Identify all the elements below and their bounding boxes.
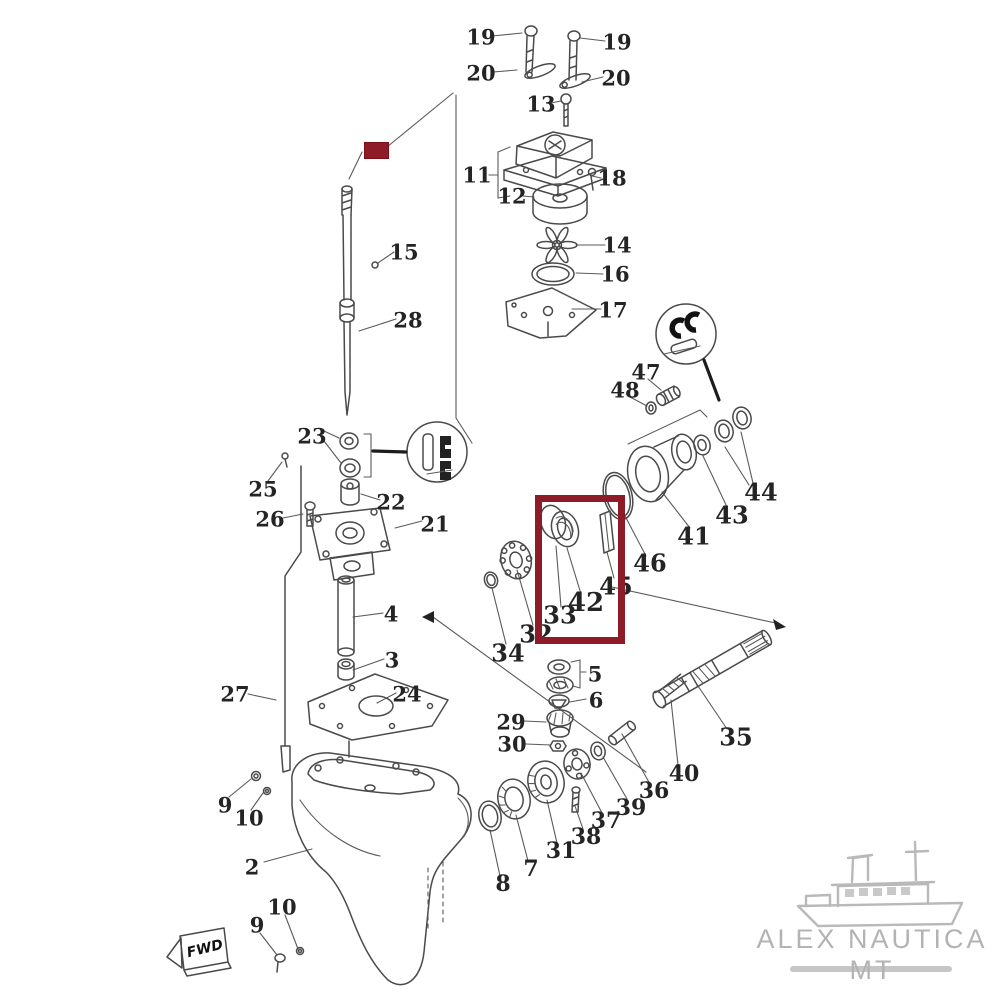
bolt-19-left — [525, 26, 537, 72]
gear-29 — [547, 710, 573, 737]
seal-8 — [476, 799, 504, 833]
pinion-gear-37 — [562, 747, 593, 781]
pump-cup-12 — [533, 184, 587, 224]
bolt-9-top — [252, 772, 261, 781]
seal-detail-balloon — [373, 422, 467, 482]
washer-20-right — [558, 71, 591, 91]
prop-shaft-35 — [651, 628, 774, 710]
bearing-carrier-41 — [623, 432, 700, 506]
highlight-box-part-42 — [535, 495, 625, 644]
lower-drive-shaft-4 — [338, 576, 354, 656]
parts-diagram-drawing — [0, 0, 1000, 1000]
gasket-16 — [532, 263, 574, 285]
lower-casing-2 — [292, 753, 471, 985]
washer-10-bottom — [297, 948, 304, 955]
plate-17 — [506, 288, 596, 338]
bushing-22 — [341, 479, 359, 505]
brand-watermark-text: ALEX NAUTICA MT — [742, 924, 1000, 986]
leader-lines — [229, 33, 753, 955]
drive-shaft-28 — [340, 186, 378, 415]
pin-25 — [282, 453, 288, 467]
bearing-housing-21 — [310, 508, 390, 580]
seals-23 — [340, 433, 371, 477]
bolt-9-bottom — [275, 954, 285, 972]
impeller-14 — [537, 226, 577, 264]
pump-housing-11 — [504, 132, 606, 196]
bushing-3 — [338, 659, 354, 680]
bolt-26 — [305, 502, 315, 526]
clip-detail-balloon — [656, 304, 719, 400]
oil-seals-44 — [712, 405, 753, 444]
washer-20-left — [523, 61, 556, 81]
bolt-19-right — [568, 31, 580, 80]
washer-10-top — [264, 788, 271, 795]
bearing-32 — [496, 538, 536, 583]
washer-6 — [549, 695, 569, 708]
screw-13 — [561, 94, 571, 126]
gasket-24 — [308, 674, 448, 757]
nut-30 — [550, 741, 566, 751]
product-image-parts-diagram: 1919202013111218141617152823252622214748… — [0, 0, 1000, 1000]
washers-48 — [646, 402, 656, 414]
washers-5 — [547, 660, 573, 693]
highlight-marker-part-1 — [364, 142, 389, 159]
sleeve-36 — [607, 720, 637, 746]
shift-rod-27 — [281, 466, 301, 772]
o-ring-34 — [483, 571, 500, 590]
